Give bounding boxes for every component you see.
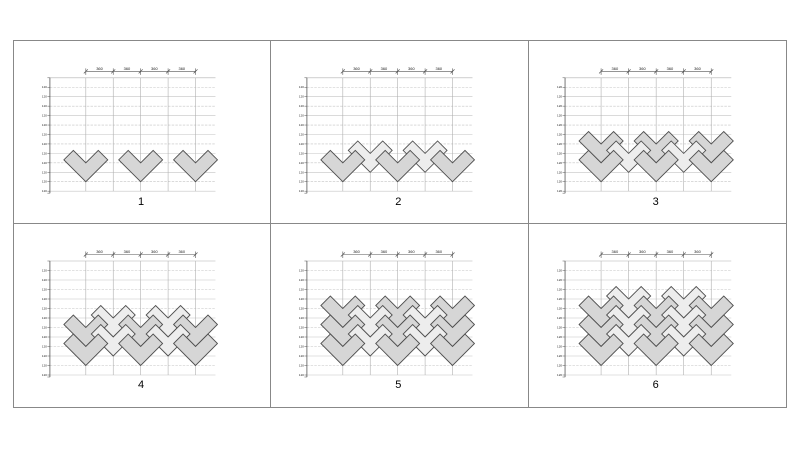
svg-text:120: 120 [557,278,562,282]
svg-text:120: 120 [42,306,47,310]
svg-text:120: 120 [299,189,304,193]
panel-6-number: 6 [529,379,783,391]
svg-text:120: 120 [557,364,562,368]
svg-text:120: 120 [42,363,47,367]
panel-2: 3603603603601201201201201201201201201201… [271,41,528,224]
svg-text:120: 120 [299,297,304,301]
svg-text:120: 120 [299,325,304,329]
svg-text:120: 120 [299,95,304,99]
svg-text:360: 360 [408,66,415,71]
svg-text:120: 120 [299,278,304,282]
svg-text:120: 120 [299,180,304,184]
svg-text:360: 360 [639,249,646,254]
svg-text:360: 360 [124,249,131,254]
svg-text:360: 360 [639,66,646,71]
svg-text:360: 360 [381,66,388,71]
svg-text:120: 120 [557,345,562,349]
panel-3-number: 3 [529,196,783,208]
svg-text:120: 120 [557,132,562,136]
svg-text:120: 120 [42,354,47,358]
svg-text:120: 120 [557,114,562,118]
svg-text:120: 120 [557,326,562,330]
svg-text:120: 120 [42,151,47,155]
svg-text:120: 120 [299,123,304,127]
svg-text:120: 120 [299,306,304,310]
panel-1: 3603603603601201201201201201201201201201… [14,41,271,224]
svg-text:120: 120 [42,114,47,118]
svg-text:360: 360 [694,66,701,71]
panel-5: 3603603603601201201201201201201201201201… [271,224,528,407]
svg-text:120: 120 [299,287,304,291]
svg-text:120: 120 [557,85,562,89]
svg-text:120: 120 [557,297,562,301]
svg-text:120: 120 [299,335,304,339]
panel-6: 3603603603601201201201201201201201201201… [529,224,786,407]
svg-text:120: 120 [557,288,562,292]
svg-text:120: 120 [557,123,562,127]
svg-text:360: 360 [666,66,673,71]
svg-text:120: 120 [42,373,47,377]
drawing-sheet: { "frame": { "border_color": "#888888" }… [0,0,800,450]
svg-text:120: 120 [299,170,304,174]
svg-text:120: 120 [557,189,562,193]
svg-text:120: 120 [557,180,562,184]
svg-text:120: 120 [557,142,562,146]
svg-text:120: 120 [299,85,304,89]
panel-4: 3603603603601201201201201201201201201201… [14,224,271,407]
panel-3: 3603603603601201201201201201201201201201… [529,41,786,224]
svg-text:120: 120 [557,95,562,99]
svg-text:360: 360 [381,249,388,254]
svg-text:360: 360 [611,66,618,71]
svg-text:360: 360 [408,249,415,254]
svg-text:360: 360 [151,66,158,71]
svg-text:360: 360 [354,66,361,71]
svg-text:120: 120 [299,151,304,155]
svg-text:120: 120 [42,189,47,193]
svg-text:120: 120 [42,132,47,136]
svg-text:360: 360 [178,66,185,71]
svg-text:360: 360 [436,249,443,254]
svg-text:120: 120 [299,132,304,136]
svg-text:360: 360 [124,66,131,71]
svg-text:120: 120 [42,142,47,146]
svg-text:360: 360 [436,66,443,71]
svg-text:120: 120 [42,123,47,127]
svg-text:120: 120 [42,344,47,348]
svg-text:120: 120 [42,325,47,329]
svg-text:120: 120 [299,363,304,367]
svg-text:120: 120 [42,161,47,165]
svg-text:120: 120 [299,142,304,146]
svg-text:120: 120 [42,316,47,320]
svg-text:120: 120 [42,170,47,174]
svg-text:120: 120 [299,268,304,272]
svg-text:360: 360 [666,249,673,254]
svg-text:120: 120 [557,354,562,358]
panel-1-number: 1 [14,196,268,208]
svg-text:360: 360 [178,249,185,254]
svg-text:120: 120 [557,269,562,273]
svg-text:120: 120 [42,287,47,291]
panel-2-number: 2 [271,196,525,208]
svg-text:120: 120 [42,85,47,89]
svg-text:360: 360 [694,249,701,254]
panel-4-number: 4 [14,379,268,391]
svg-text:120: 120 [42,278,47,282]
svg-text:120: 120 [299,114,304,118]
svg-text:120: 120 [299,104,304,108]
svg-text:120: 120 [299,316,304,320]
svg-text:360: 360 [354,249,361,254]
svg-text:360: 360 [151,249,158,254]
svg-text:120: 120 [557,307,562,311]
svg-text:120: 120 [299,354,304,358]
svg-text:360: 360 [96,66,103,71]
svg-text:120: 120 [557,104,562,108]
svg-text:120: 120 [557,170,562,174]
panel-5-number: 5 [271,379,525,391]
svg-text:120: 120 [299,344,304,348]
svg-text:120: 120 [557,151,562,155]
svg-text:120: 120 [557,316,562,320]
svg-text:120: 120 [42,335,47,339]
svg-text:360: 360 [611,249,618,254]
svg-text:120: 120 [42,95,47,99]
svg-text:120: 120 [557,335,562,339]
svg-text:120: 120 [557,373,562,377]
svg-text:120: 120 [42,180,47,184]
svg-text:360: 360 [96,249,103,254]
svg-text:120: 120 [42,104,47,108]
svg-text:120: 120 [557,161,562,165]
svg-text:120: 120 [299,373,304,377]
svg-text:120: 120 [299,161,304,165]
svg-text:120: 120 [42,297,47,301]
svg-text:120: 120 [42,268,47,272]
sheet-frame: 3603603603601201201201201201201201201201… [13,40,787,408]
